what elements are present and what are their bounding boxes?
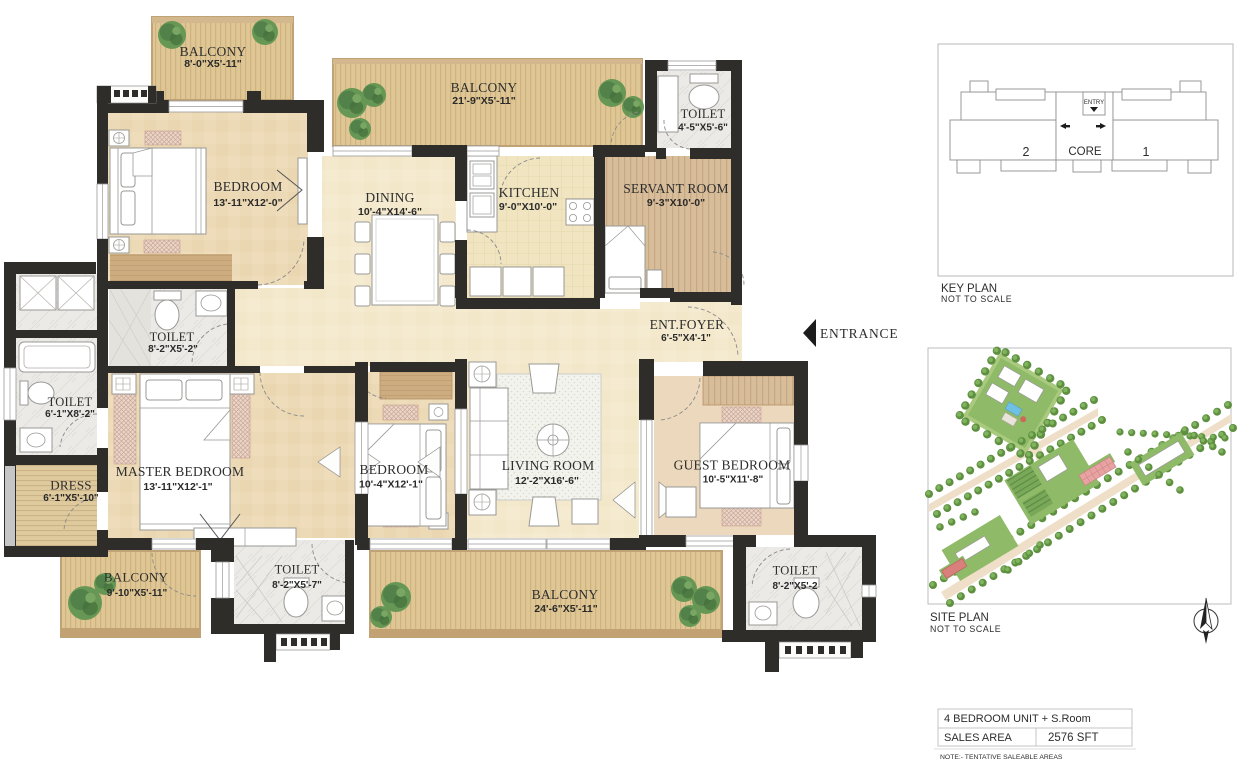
svg-text:1: 1 bbox=[1143, 145, 1150, 159]
svg-text:KITCHEN: KITCHEN bbox=[499, 185, 560, 200]
svg-text:BALCONY: BALCONY bbox=[451, 80, 518, 95]
svg-text:NOT TO SCALE: NOT TO SCALE bbox=[930, 624, 1001, 634]
svg-text:BEDROOM: BEDROOM bbox=[214, 179, 283, 194]
svg-text:8'-0"X5'-11": 8'-0"X5'-11" bbox=[184, 58, 242, 70]
svg-text:6'-1"X5'-10": 6'-1"X5'-10" bbox=[43, 493, 99, 504]
svg-text:BEDROOM: BEDROOM bbox=[360, 462, 429, 477]
svg-text:9'-3"X10'-0": 9'-3"X10'-0" bbox=[647, 197, 705, 209]
svg-text:TOILET: TOILET bbox=[275, 563, 320, 577]
svg-text:24'-6"X5'-11": 24'-6"X5'-11" bbox=[534, 603, 597, 615]
svg-text:SALES AREA: SALES AREA bbox=[944, 732, 1013, 744]
svg-text:2576 SFT: 2576 SFT bbox=[1048, 732, 1099, 744]
svg-text:SITE PLAN: SITE PLAN bbox=[930, 612, 989, 624]
svg-text:GUEST BEDROOM: GUEST BEDROOM bbox=[674, 458, 791, 473]
svg-text:TOILET: TOILET bbox=[681, 107, 726, 121]
svg-text:4'-5"X5'-6": 4'-5"X5'-6" bbox=[678, 123, 728, 134]
svg-text:TOILET: TOILET bbox=[48, 395, 93, 409]
svg-text:6'-1"X8'-2": 6'-1"X8'-2" bbox=[45, 409, 95, 420]
svg-text:NOTE:- TENTATIVE SALEABLE AREA: NOTE:- TENTATIVE SALEABLE AREAS bbox=[940, 754, 1063, 761]
svg-text:TOILET: TOILET bbox=[150, 330, 195, 344]
svg-text:ENT.FOYER: ENT.FOYER bbox=[650, 317, 725, 332]
svg-text:13'-11"X12'-0": 13'-11"X12'-0" bbox=[213, 197, 282, 209]
svg-text:4 BEDROOM UNIT + S.Room: 4 BEDROOM UNIT + S.Room bbox=[944, 713, 1091, 725]
svg-text:6'-5"X4'-1": 6'-5"X4'-1" bbox=[661, 333, 711, 344]
svg-text:DINING: DINING bbox=[365, 190, 414, 205]
svg-text:10'-4"X12'-1": 10'-4"X12'-1" bbox=[359, 479, 423, 491]
svg-text:BALCONY: BALCONY bbox=[104, 570, 169, 585]
svg-text:NOT TO SCALE: NOT TO SCALE bbox=[941, 294, 1012, 304]
svg-text:8'-2"X5'-7": 8'-2"X5'-7" bbox=[272, 580, 322, 591]
svg-text:LIVING ROOM: LIVING ROOM bbox=[502, 458, 595, 473]
svg-text:TOILET: TOILET bbox=[773, 564, 818, 578]
svg-text:BALCONY: BALCONY bbox=[180, 44, 247, 59]
svg-text:13'-11"X12'-1": 13'-11"X12'-1" bbox=[143, 481, 212, 493]
svg-text:MASTER BEDROOM: MASTER BEDROOM bbox=[116, 464, 244, 479]
svg-text:CORE: CORE bbox=[1068, 146, 1102, 158]
svg-text:9'-10"X5'-11": 9'-10"X5'-11" bbox=[107, 588, 168, 599]
svg-text:8'-2"X5'-2": 8'-2"X5'-2" bbox=[148, 344, 198, 355]
svg-text:8'-2"X5'-2: 8'-2"X5'-2 bbox=[772, 581, 818, 592]
svg-text:DRESS: DRESS bbox=[50, 478, 91, 493]
svg-text:21'-9"X5'-11": 21'-9"X5'-11" bbox=[452, 95, 515, 107]
svg-text:2: 2 bbox=[1023, 145, 1030, 159]
svg-text:BALCONY: BALCONY bbox=[532, 587, 599, 602]
svg-text:ENTRANCE: ENTRANCE bbox=[820, 326, 898, 341]
svg-text:10'-5"X11'-8": 10'-5"X11'-8" bbox=[703, 475, 764, 486]
svg-text:9'-0"X10'-0": 9'-0"X10'-0" bbox=[499, 201, 557, 213]
svg-text:SERVANT ROOM: SERVANT ROOM bbox=[623, 181, 728, 196]
svg-text:ENTRY: ENTRY bbox=[1084, 100, 1104, 106]
svg-text:12'-2"X16'-6": 12'-2"X16'-6" bbox=[515, 475, 579, 487]
svg-text:10'-4"X14'-6": 10'-4"X14'-6" bbox=[358, 206, 422, 218]
